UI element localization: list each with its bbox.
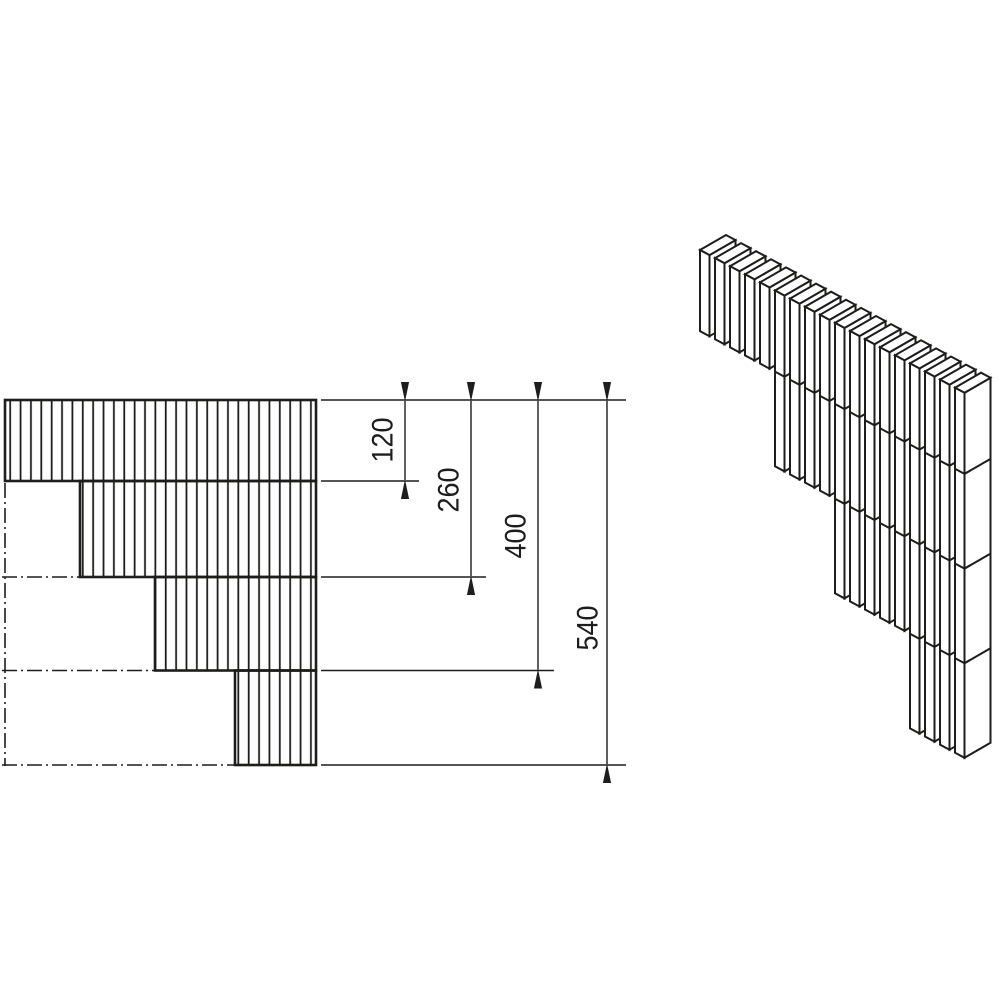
dimension-lines bbox=[405, 401, 607, 764]
iso-column-front-face bbox=[715, 258, 725, 344]
iso-column-front-face bbox=[940, 380, 950, 750]
iso-column-front-face bbox=[895, 355, 905, 631]
iso-column-front-face bbox=[760, 282, 770, 368]
plan-view: 120 260 400 540 bbox=[2, 400, 626, 766]
wall-row-2 bbox=[80, 481, 316, 577]
dimension-label-540: 540 bbox=[572, 606, 605, 651]
iso-column-side-face bbox=[965, 378, 991, 758]
wall-row-3 bbox=[155, 577, 316, 671]
iso-column-front-face bbox=[955, 388, 965, 758]
drawing-canvas: 120 260 400 540 bbox=[0, 0, 1000, 1000]
iso-column-front-face bbox=[850, 331, 860, 607]
iso-column-front-face bbox=[835, 323, 845, 599]
iso-column-front-face bbox=[730, 266, 740, 352]
wall-rows bbox=[5, 400, 316, 765]
iso-column-front-face bbox=[910, 363, 920, 733]
dimension-label-120: 120 bbox=[367, 418, 400, 463]
iso-view bbox=[700, 235, 991, 758]
iso-column-front-face bbox=[880, 347, 890, 623]
iso-column-front-face bbox=[820, 315, 830, 496]
technical-drawing: 120 260 400 540 bbox=[0, 0, 1000, 1000]
dimension-labels: 120 260 400 540 bbox=[367, 418, 605, 651]
wall-row-1 bbox=[5, 400, 316, 481]
dimension-label-400: 400 bbox=[500, 514, 533, 559]
iso-column-front-face bbox=[865, 339, 875, 614]
iso-column-front-face bbox=[925, 372, 935, 742]
iso-column-front-face bbox=[790, 299, 800, 480]
iso-column-front-face bbox=[700, 250, 710, 336]
iso-column-front-face bbox=[745, 274, 755, 360]
dimension-label-260: 260 bbox=[433, 468, 466, 513]
iso-column-front-face bbox=[775, 291, 785, 472]
wall-row-4 bbox=[235, 671, 316, 766]
iso-column-front-face bbox=[805, 307, 815, 488]
